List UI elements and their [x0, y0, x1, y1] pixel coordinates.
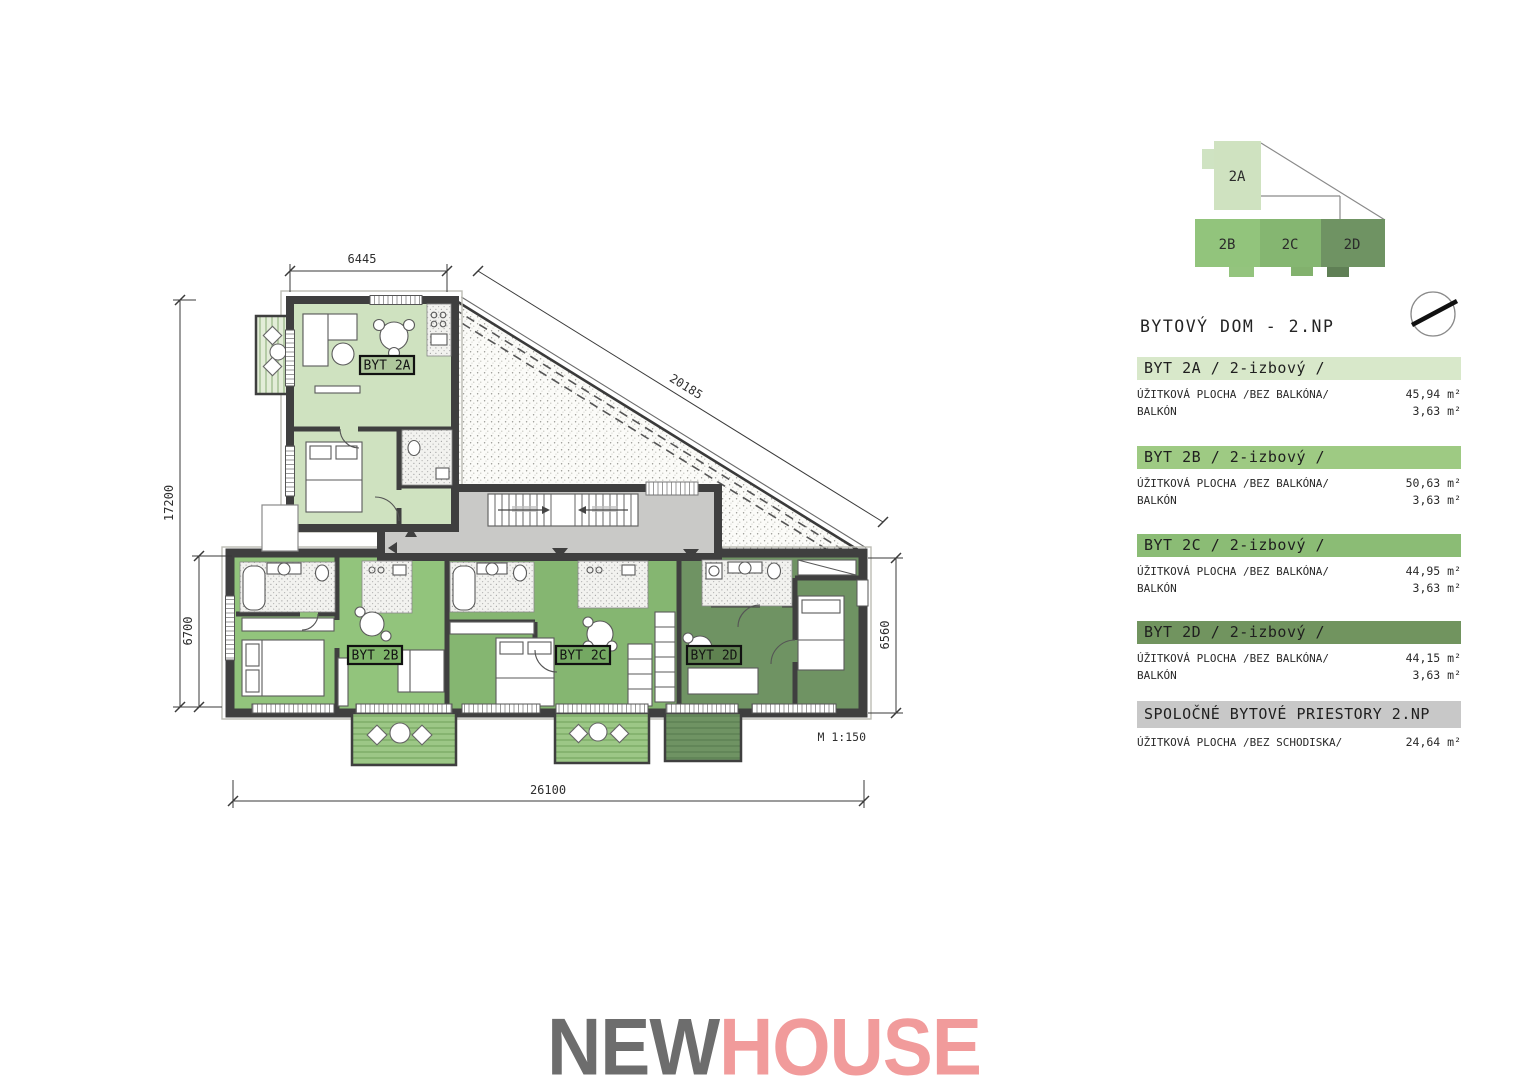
- legend-header-2c: BYT 2C / 2-izbový /: [1137, 534, 1461, 557]
- legend-label: BALKÓN: [1137, 492, 1177, 509]
- unit-label-2b: BYT 2B: [352, 649, 399, 664]
- legend-label: BALKÓN: [1137, 580, 1177, 597]
- legend-entry-2a: BYT 2A / 2-izbový / ÚŽITKOVÁ PLOCHA /BEZ…: [1137, 357, 1461, 420]
- legend-label: ÚŽITKOVÁ PLOCHA /BEZ BALKÓNA/: [1137, 386, 1329, 403]
- legend-value: 50,63 m²: [1406, 475, 1461, 492]
- minimap-label-2b: 2B: [1219, 237, 1236, 253]
- legend-value: 3,63 m²: [1413, 667, 1461, 684]
- logo-new: NEW: [547, 1001, 719, 1080]
- dim-left-lower: 6700: [181, 617, 195, 646]
- legend-label: BALKÓN: [1137, 667, 1177, 684]
- staircase: [488, 494, 638, 526]
- legend-label: BALKÓN: [1137, 403, 1177, 420]
- minimap-label-2c: 2C: [1282, 237, 1299, 253]
- legend-entry-2b: BYT 2B / 2-izbový / ÚŽITKOVÁ PLOCHA /BEZ…: [1137, 446, 1461, 509]
- unit-label-2c: BYT 2C: [560, 649, 607, 664]
- scale-note: M 1:150: [818, 730, 867, 744]
- legend-label: ÚŽITKOVÁ PLOCHA /BEZ BALKÓNA/: [1137, 563, 1329, 580]
- newhouse-logo: NEWHOUSE: [547, 1000, 981, 1080]
- floor-plan-sheet: BYT 2A BYT 2B BYT 2C BYT 2D 6445 20185 1…: [0, 0, 1528, 1080]
- unit-label-2a: BYT 2A: [364, 359, 411, 374]
- legend-header-2b: BYT 2B / 2-izbový /: [1137, 446, 1461, 469]
- unit-label-2d: BYT 2D: [691, 649, 738, 664]
- legend-value: 24,64 m²: [1406, 734, 1461, 751]
- legend-value: 3,63 m²: [1413, 580, 1461, 597]
- minimap: 2A 2B 2C 2D: [1195, 141, 1385, 277]
- legend-value: 45,94 m²: [1406, 386, 1461, 403]
- legend-header-2a: BYT 2A / 2-izbový /: [1137, 357, 1461, 380]
- dim-bottom: 26100: [530, 783, 566, 797]
- compass-icon: [1411, 292, 1457, 336]
- legend-label: ÚŽITKOVÁ PLOCHA /BEZ SCHODISKA/: [1137, 734, 1342, 751]
- dim-right: 6560: [878, 621, 892, 650]
- minimap-label-2a: 2A: [1229, 169, 1246, 185]
- legend-header-2d: BYT 2D / 2-izbový /: [1137, 621, 1461, 644]
- dim-top: 6445: [348, 252, 377, 266]
- legend-value: 44,95 m²: [1406, 563, 1461, 580]
- balcony-2d: [665, 713, 741, 761]
- dim-diagonal: 20185: [667, 371, 705, 402]
- logo-house: HOUSE: [719, 1001, 981, 1080]
- legend-label: ÚŽITKOVÁ PLOCHA /BEZ BALKÓNA/: [1137, 650, 1329, 667]
- legend-entry-common: SPOLOČNÉ BYTOVÉ PRIESTORY 2.NP ÚŽITKOVÁ …: [1137, 701, 1461, 751]
- legend-header-common: SPOLOČNÉ BYTOVÉ PRIESTORY 2.NP: [1137, 701, 1461, 728]
- legend-value: 3,63 m²: [1413, 403, 1461, 420]
- legend-entry-2c: BYT 2C / 2-izbový / ÚŽITKOVÁ PLOCHA /BEZ…: [1137, 534, 1461, 597]
- minimap-label-2d: 2D: [1344, 237, 1361, 253]
- kitchen-2a: [427, 304, 451, 356]
- entrance-doormat: [646, 482, 698, 495]
- legend-entry-2d: BYT 2D / 2-izbový / ÚŽITKOVÁ PLOCHA /BEZ…: [1137, 621, 1461, 684]
- legend-value: 44,15 m²: [1406, 650, 1461, 667]
- legend-value: 3,63 m²: [1413, 492, 1461, 509]
- legend-label: ÚŽITKOVÁ PLOCHA /BEZ BALKÓNA/: [1137, 475, 1329, 492]
- entry-landing: [262, 505, 298, 551]
- dim-left-total: 17200: [162, 485, 176, 521]
- page-title: BYTOVÝ DOM - 2.NP: [1140, 317, 1334, 336]
